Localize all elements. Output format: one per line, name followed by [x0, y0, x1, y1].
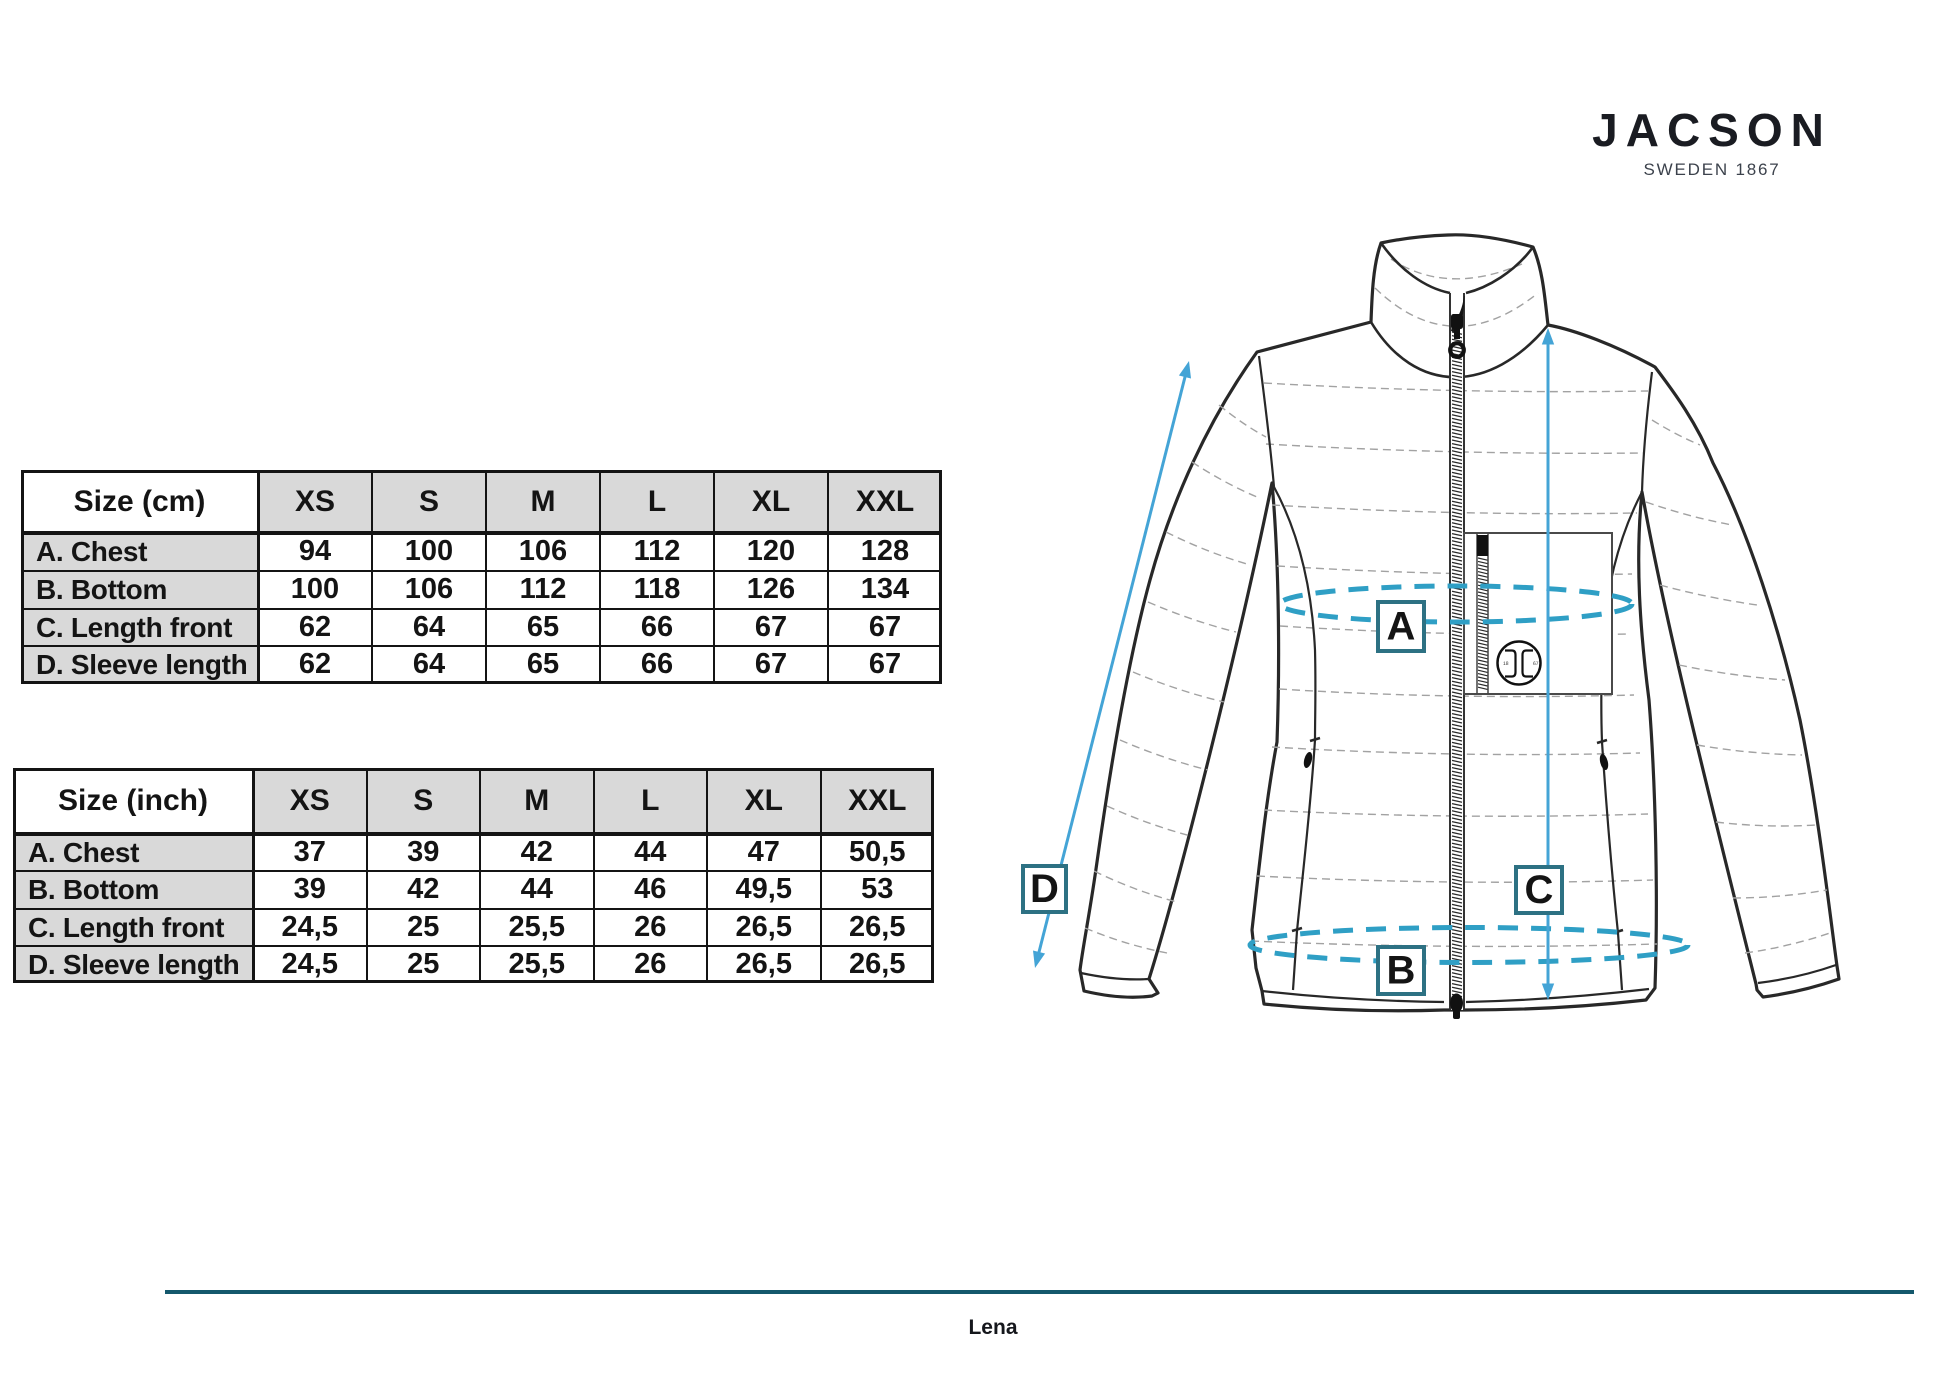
- svg-text:18: 18: [1503, 661, 1509, 667]
- svg-text:B: B: [1387, 949, 1416, 993]
- svg-text:D: D: [1030, 867, 1059, 911]
- svg-text:C: C: [1525, 868, 1554, 912]
- svg-text:67: 67: [1533, 661, 1539, 667]
- svg-text:A: A: [1387, 605, 1416, 649]
